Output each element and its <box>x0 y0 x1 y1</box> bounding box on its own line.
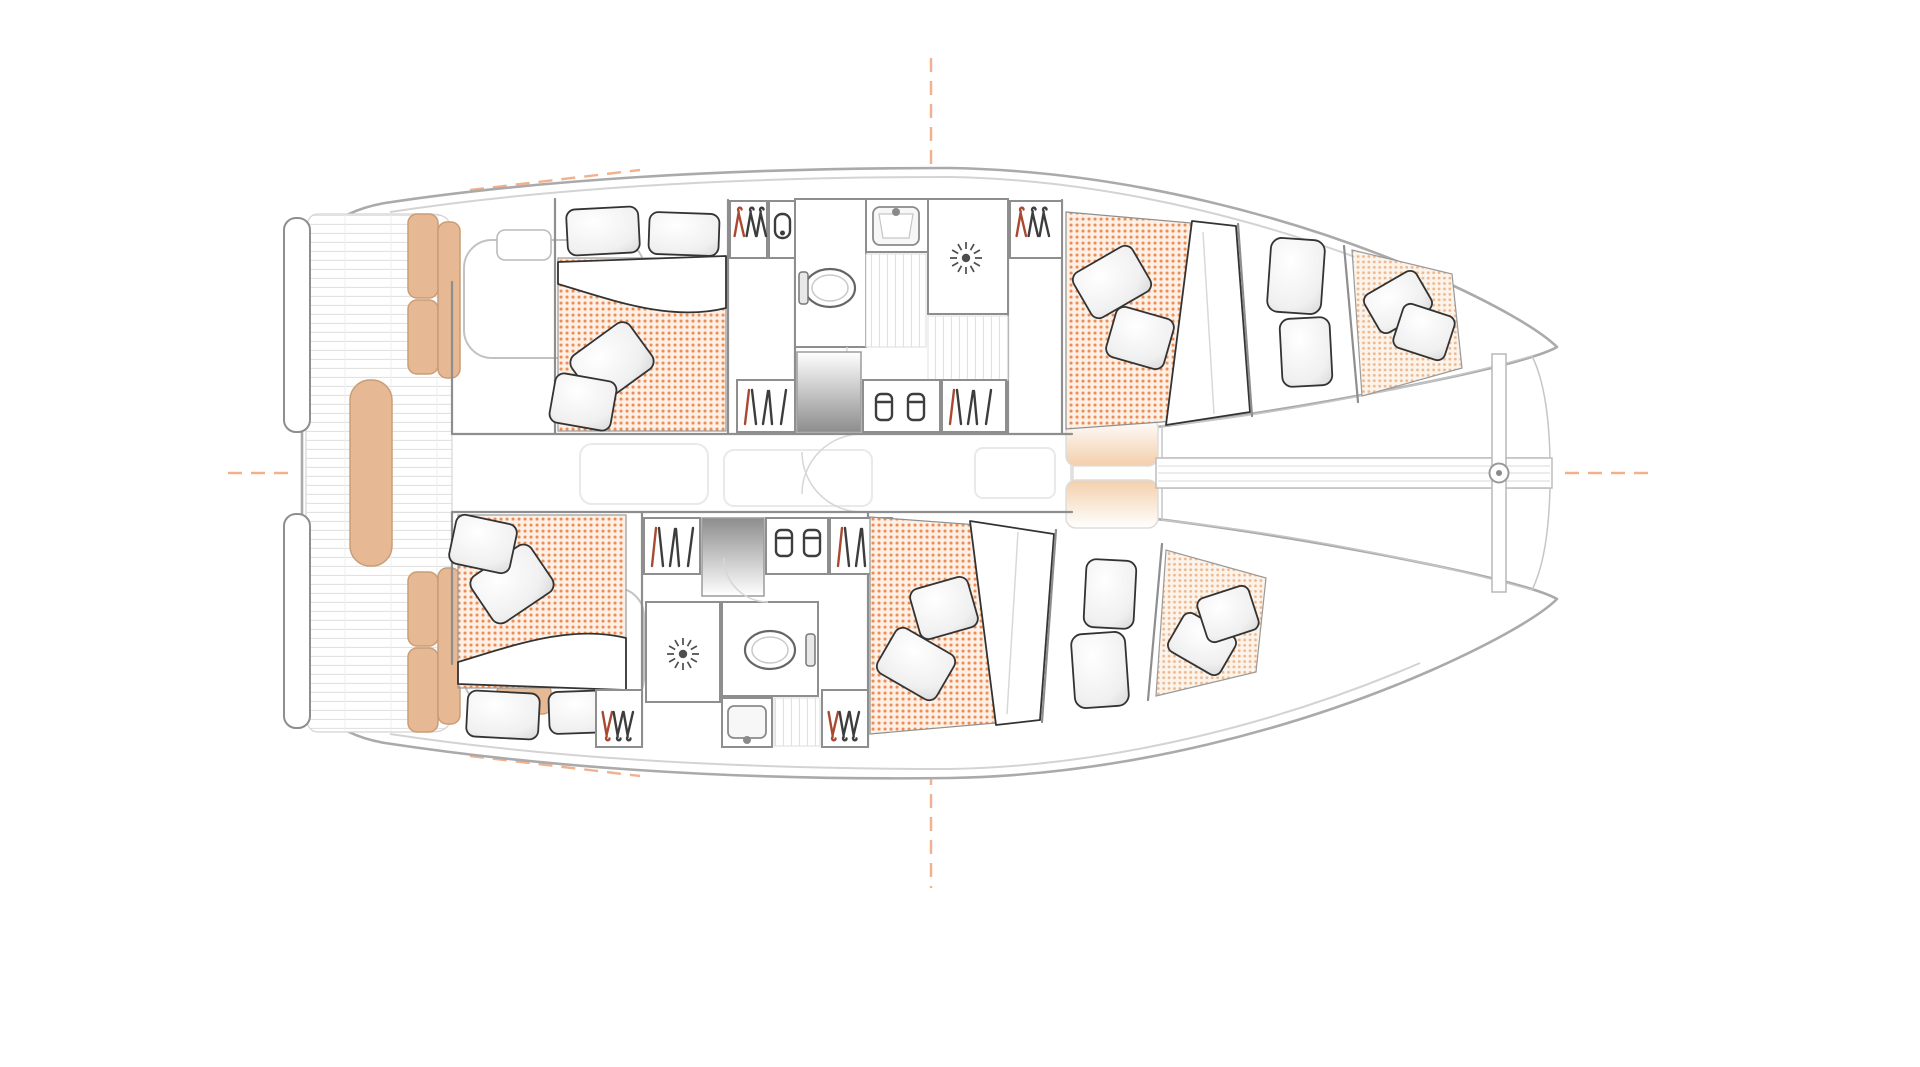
bench-backrest <box>438 222 460 378</box>
pillow <box>1083 559 1136 630</box>
upper-wardrobe <box>730 201 796 258</box>
lower-forward-cabin <box>870 517 1056 734</box>
bench-cushion <box>408 214 438 298</box>
upper-forward-cabin <box>1066 212 1252 429</box>
pillow <box>466 690 540 740</box>
pillow <box>566 206 640 256</box>
cabinet <box>769 201 796 258</box>
faucet-icon <box>743 736 751 744</box>
side-table-top <box>497 230 551 260</box>
faucet-icon <box>892 208 900 216</box>
bench-cushion <box>408 572 438 646</box>
bench-backrest <box>438 568 460 724</box>
catamaran-floor-plan <box>0 0 1920 1067</box>
glass-cabinet <box>863 380 940 432</box>
pillow <box>1070 631 1129 709</box>
sun-lounge <box>350 380 392 566</box>
swim-platform-bottom <box>284 514 310 728</box>
throw-pillow <box>548 372 618 432</box>
swim-platform-top <box>284 218 310 432</box>
latch-pin-icon <box>780 231 785 236</box>
upper-forward-wardrobe <box>1010 201 1062 258</box>
foredeck-locker-bottom <box>1066 480 1158 528</box>
forestay-pin-icon <box>1496 470 1502 476</box>
toilet-cistern-icon <box>806 634 815 666</box>
saloon-furniture-hint <box>580 444 708 504</box>
sink-icon <box>728 706 766 738</box>
head-floor <box>866 254 926 347</box>
toilet-cistern-icon <box>799 272 808 304</box>
bench-cushion <box>408 300 438 374</box>
corridor-floor <box>928 316 1008 380</box>
saloon-furniture-hint <box>975 448 1055 498</box>
floor-plan-canvas <box>0 0 1920 1067</box>
sink-basin-icon <box>879 214 913 238</box>
companionway-steps <box>797 352 861 432</box>
pillow <box>648 212 719 256</box>
pillow <box>1266 237 1325 315</box>
upper-aft-cabin <box>548 206 726 432</box>
pillow <box>1279 317 1332 388</box>
saloon-furniture-hint <box>724 450 872 506</box>
head-floor <box>774 698 820 746</box>
bench-cushion <box>408 648 438 732</box>
